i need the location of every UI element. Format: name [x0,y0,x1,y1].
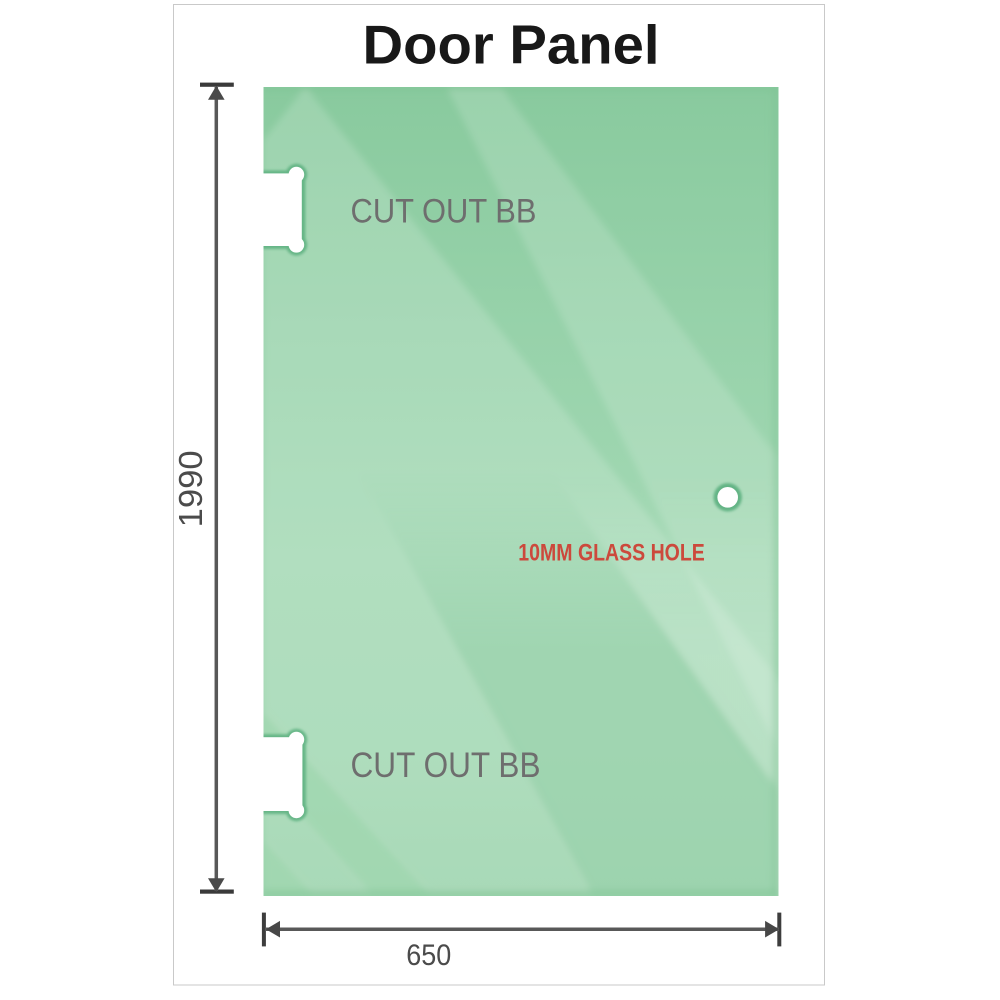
svg-text:1990: 1990 [172,450,209,527]
svg-text:10MM GLASS HOLE: 10MM GLASS HOLE [518,539,705,566]
svg-text:CUT OUT BB: CUT OUT BB [351,746,541,785]
svg-text:650: 650 [406,939,451,972]
svg-text:CUT OUT BB: CUT OUT BB [351,192,537,230]
svg-text:Door Panel: Door Panel [363,15,660,76]
